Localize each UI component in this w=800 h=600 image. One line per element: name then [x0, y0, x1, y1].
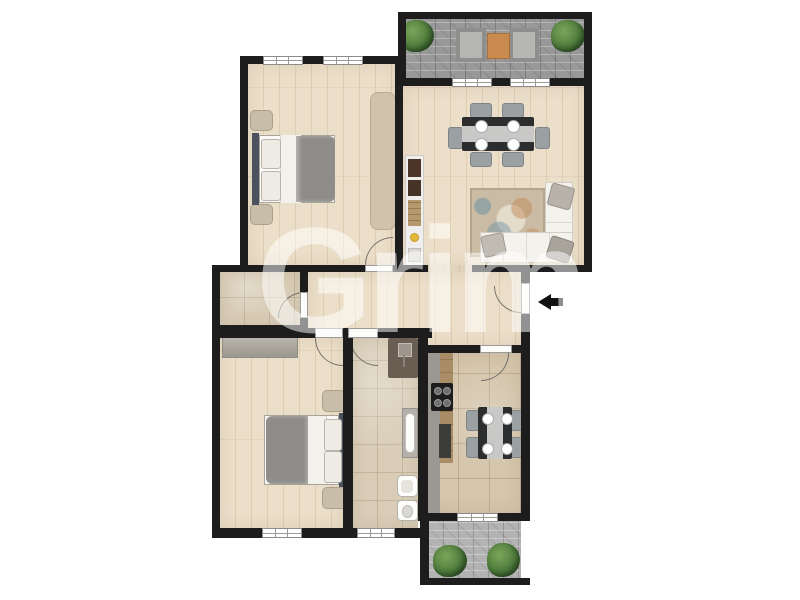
- wall: [403, 78, 584, 86]
- door-bedroom-2: [315, 328, 343, 338]
- burner: [443, 399, 451, 407]
- plate: [501, 443, 513, 455]
- burner: [443, 387, 451, 395]
- burner: [434, 399, 442, 407]
- bidet-inner: [401, 480, 413, 493]
- plate: [507, 120, 520, 133]
- bed-duvet: [266, 416, 310, 484]
- wall: [212, 265, 220, 538]
- window: [262, 528, 302, 538]
- bedside-mat: [250, 204, 273, 225]
- sideboard-bowl: [410, 233, 419, 242]
- dining-chair: [535, 127, 550, 149]
- bedroom-1-rug: [370, 92, 396, 230]
- window: [357, 528, 395, 538]
- door-bedroom-1: [365, 265, 393, 272]
- sofa-pillow: [480, 232, 507, 258]
- shower-head-icon: [398, 343, 412, 357]
- terrace-side-table: [487, 33, 510, 59]
- terrace-armchair: [456, 28, 486, 62]
- shower: [388, 338, 418, 378]
- dining-chair: [470, 152, 492, 167]
- door-kitchen: [480, 345, 512, 353]
- dining-chair: [502, 103, 524, 118]
- terrace-armchair: [509, 28, 539, 62]
- entrance-arrow-shaft: [550, 298, 563, 306]
- floorplan-canvas: Grim: [0, 0, 800, 600]
- wall: [420, 521, 429, 578]
- plate: [475, 120, 488, 133]
- wall: [403, 265, 428, 272]
- shower-pipe: [403, 355, 405, 367]
- wall: [395, 56, 403, 272]
- plate: [475, 138, 488, 151]
- sideboard-shelf: [408, 200, 421, 226]
- sideboard-item: [408, 248, 421, 262]
- living-sideboard: [405, 155, 424, 270]
- wall: [212, 325, 308, 338]
- window: [510, 78, 550, 87]
- burner: [434, 387, 442, 395]
- front-door: [521, 283, 530, 314]
- plate: [501, 413, 513, 425]
- wall: [420, 578, 530, 585]
- dining-chair: [470, 103, 492, 118]
- plate: [482, 413, 494, 425]
- bed-pillow: [324, 419, 342, 451]
- sideboard-item: [408, 180, 421, 196]
- bed-2: [262, 413, 346, 487]
- dining-chair: [502, 152, 524, 167]
- toilet-bowl: [402, 505, 413, 518]
- bed-headboard: [252, 133, 259, 205]
- wall: [418, 345, 530, 353]
- wall: [343, 328, 353, 538]
- toilet: [397, 500, 418, 521]
- bidet: [397, 475, 418, 497]
- wall: [418, 328, 428, 521]
- wall: [398, 12, 592, 19]
- door-bathroom: [348, 328, 378, 338]
- bed-pillow: [261, 139, 281, 169]
- window: [323, 56, 363, 65]
- plate: [482, 443, 494, 455]
- stove: [431, 383, 453, 411]
- wall: [584, 12, 592, 272]
- wall: [212, 528, 428, 538]
- window: [457, 513, 498, 522]
- sideboard-item: [408, 159, 421, 177]
- bed-duvet: [296, 136, 335, 202]
- window: [263, 56, 303, 65]
- dining-table: [462, 117, 534, 151]
- window: [452, 78, 492, 87]
- bed-1: [252, 133, 337, 205]
- door-storage: [300, 292, 308, 318]
- bedside-mat: [250, 110, 273, 131]
- bed-pillow: [261, 171, 281, 201]
- bathroom-sink: [402, 408, 418, 458]
- wall: [240, 56, 248, 272]
- sink-basin: [405, 413, 415, 453]
- table-runner: [462, 126, 534, 142]
- plate: [507, 138, 520, 151]
- kitchen-tall-unit: [439, 424, 451, 458]
- wall: [472, 265, 592, 272]
- bed-pillow: [324, 451, 342, 483]
- dining-chair: [448, 127, 463, 149]
